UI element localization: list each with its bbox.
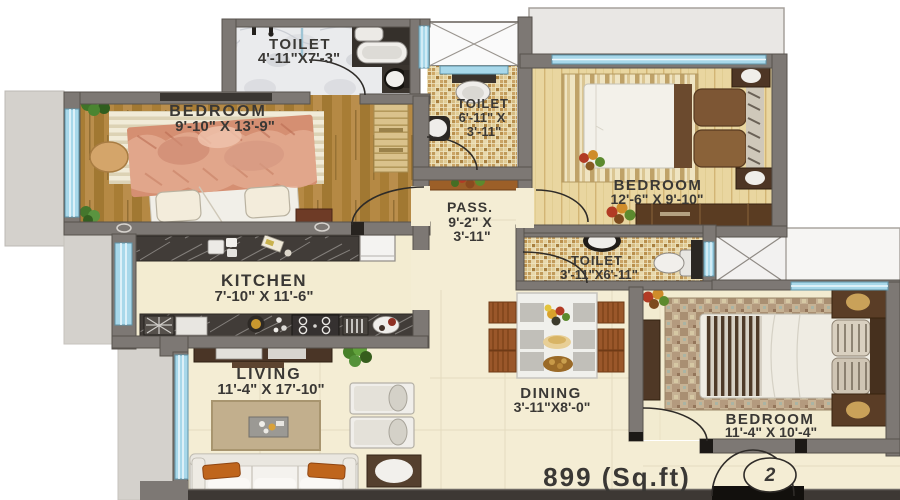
svg-text:2: 2 xyxy=(764,465,776,486)
svg-text:899 (Sq.ft): 899 (Sq.ft) xyxy=(543,462,691,492)
svg-text:12'-6" X 9'-10": 12'-6" X 9'-10" xyxy=(610,191,703,207)
svg-text:4'-11"X7'-3": 4'-11"X7'-3" xyxy=(258,50,340,67)
svg-text:3'-11": 3'-11" xyxy=(453,228,490,244)
svg-text:9'-10" X 13'-9": 9'-10" X 13'-9" xyxy=(175,118,275,135)
svg-text:3'-11"X8'-0": 3'-11"X8'-0" xyxy=(514,399,591,415)
svg-text:TOILET: TOILET xyxy=(571,253,623,268)
svg-text:3'-11": 3'-11" xyxy=(467,124,502,139)
svg-text:6'-11" X: 6'-11" X xyxy=(459,110,506,125)
svg-text:11'-4" X 10'-4": 11'-4" X 10'-4" xyxy=(725,424,817,440)
svg-text:11'-4" X 17'-10": 11'-4" X 17'-10" xyxy=(217,381,324,398)
svg-text:TOILET: TOILET xyxy=(457,96,509,111)
svg-text:7'-10" X 11'-6": 7'-10" X 11'-6" xyxy=(215,288,314,305)
svg-text:3'-11"X6'-11": 3'-11"X6'-11" xyxy=(560,267,638,282)
svg-text:PASS.: PASS. xyxy=(447,199,493,215)
